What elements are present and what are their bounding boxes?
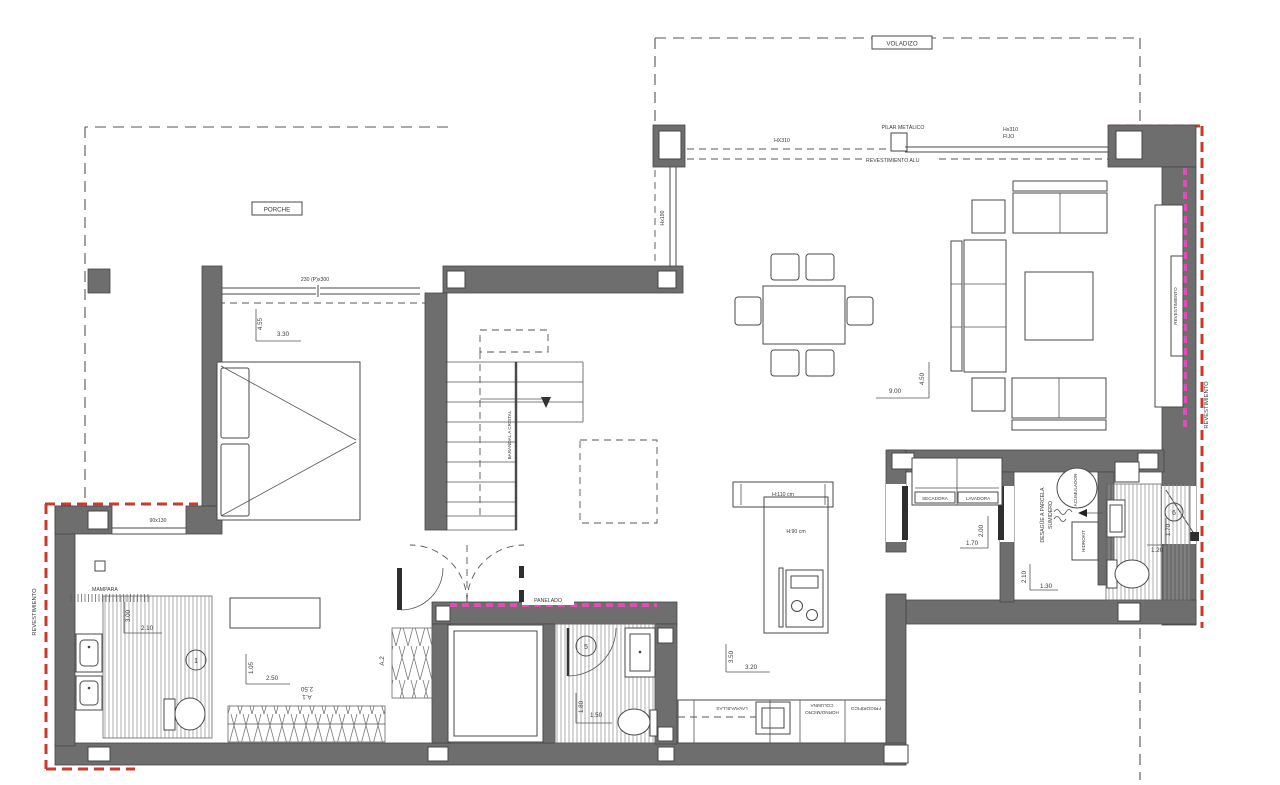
porch-post <box>88 269 110 293</box>
window-fixed-top <box>905 147 1108 152</box>
dim-door-a1: A.1 <box>302 693 312 700</box>
window-left-living <box>670 167 676 266</box>
room-number-bath1: 1 <box>194 658 198 665</box>
cooktop <box>786 570 823 627</box>
tv-unit <box>1155 205 1183 407</box>
chair <box>806 350 834 376</box>
label-revestimiento-right-inner: REVESTIMIENTO <box>1173 287 1178 325</box>
label-secadora: SECADORA <box>922 496 949 501</box>
door-bedroom-leaf <box>397 568 402 610</box>
label-revestimiento-alu: REVESTIMIENTO ALU <box>866 158 920 164</box>
label-frigorifico: FRIGORÍFICO <box>851 706 882 712</box>
dim-bath5-d: 1.80 <box>578 700 585 713</box>
label-barandal: BARANDAL A CRISTAL <box>507 410 512 459</box>
side-table <box>972 378 1005 411</box>
label-hx310-fijo-1: Hx310 <box>1003 127 1018 133</box>
label-lavavajillas: LAVAVAJILLAS <box>716 706 747 711</box>
dim-bedroom-h: 3.30 <box>277 331 290 338</box>
dim-tech-w: 1.30 <box>1040 583 1053 590</box>
label-puerta-230: 230 (P)x300 <box>301 277 329 283</box>
dim-living-d: 4.50 <box>919 372 926 385</box>
hall-double-door <box>410 545 524 602</box>
label-90x130: 90x130 <box>149 518 166 524</box>
technical-room: ACUMULADOR HIDROKIT SUMIDERO DESAGÜE A P… <box>1021 468 1103 590</box>
toilet-tank <box>650 710 657 736</box>
master-bathroom: MAMPARA 1 90x130 3.00 2.10 <box>70 518 212 738</box>
chair <box>771 350 799 376</box>
wardrobe <box>392 628 432 698</box>
label-revestimiento-right-outer: REVESTIMIENTO <box>1204 381 1210 429</box>
label-pilar-metalico: PILAR METÁLICO <box>882 124 925 131</box>
window-porch <box>222 285 420 297</box>
label-acumulador: ACUMULADOR <box>1073 473 1078 506</box>
dim-bath6-w: 1.20 <box>1151 547 1164 554</box>
coffee-table <box>1025 272 1093 340</box>
label-hx190: Hx190 <box>660 210 666 225</box>
dim-bath1-w: 2.10 <box>141 625 154 632</box>
dining-table <box>763 286 845 344</box>
floor-plan-page: REVESTIMIENTO REVESTIMIENTO <box>0 0 1280 785</box>
chair <box>771 254 799 280</box>
steel-pillar <box>891 133 907 151</box>
drain-arrow <box>1078 509 1087 517</box>
stair-direction-arrow <box>541 397 551 408</box>
laundry-room: SECADORA LAVADORA 2.00 1.70 <box>912 458 1002 548</box>
kitchen-island <box>764 497 828 633</box>
upper-floor-void-outline <box>580 440 657 523</box>
kitchen-sink <box>756 702 790 734</box>
dim-bath6-d: 1.70 <box>1165 523 1172 536</box>
dim-dressing-w: 2.50 <box>266 675 279 682</box>
chair <box>806 254 834 280</box>
label-panelado: PANELADO <box>534 598 562 604</box>
dim-laundry-d: 2.00 <box>978 524 985 537</box>
label-columna: COLUMNA <box>810 703 834 708</box>
top-labels: VOLADIZO PILAR METÁLICO HX310 Hx310 FIJO… <box>252 36 1018 283</box>
bathroom-5: 5 1.80 1.50 <box>555 624 657 743</box>
dim-door-a2: A.2 <box>379 656 386 666</box>
dim-kitchen-d: 3.50 <box>728 650 735 663</box>
dim-tech-d: 2.10 <box>1021 570 1028 583</box>
chair <box>847 297 873 325</box>
label-porche: PORCHE <box>264 207 290 214</box>
kitchen: LAVAVAJILLAS COLUMNA HORNO/MICRO FRIGORÍ… <box>678 482 886 743</box>
toilet <box>618 709 650 735</box>
dim-dressing-d: 1.05 <box>248 661 255 674</box>
label-revestimiento-left: REVESTIMIENTO <box>32 588 38 636</box>
dim-laundry-w: 1.70 <box>966 540 979 547</box>
dim-living-w: 9.00 <box>889 388 902 395</box>
toilet-tank <box>164 699 175 730</box>
chair <box>735 297 761 325</box>
living-area: REVESTIMIENTO 9.00 4.50 <box>876 181 1183 430</box>
label-h110: H:110 cm <box>772 492 794 498</box>
label-horno-micro: HORNO/MICRO <box>805 710 839 715</box>
label-h90: H:90 cm <box>786 529 805 535</box>
label-voladizo: VOLADIZO <box>886 41 917 48</box>
side-table <box>972 200 1005 233</box>
toilet <box>175 698 205 730</box>
dim-door-a1-w: 2.50 <box>300 685 313 692</box>
label-lavadora: LAVADORA <box>966 496 991 501</box>
window-bath1 <box>112 528 186 534</box>
dim-bedroom-v: 4.55 <box>257 317 264 330</box>
label-hx310: HX310 <box>774 138 790 144</box>
mampara-screen <box>70 594 150 602</box>
dim-bath1-d: 3.00 <box>125 609 132 622</box>
room-number-bath6: 6 <box>1172 510 1176 517</box>
dresser <box>230 598 320 628</box>
toilet <box>1115 560 1149 588</box>
room-number-bath5: 5 <box>584 644 588 651</box>
shower-drain <box>95 561 105 571</box>
floor-plan-drawing: REVESTIMIENTO REVESTIMIENTO <box>0 0 1280 785</box>
label-sumidero: SUMIDERO <box>1048 501 1054 529</box>
pillow <box>221 368 249 438</box>
elevator-shaft <box>448 625 543 742</box>
label-desague: DESAGÜE A PARCELA <box>1039 487 1046 543</box>
label-hidrokit: HIDROKIT <box>1081 530 1086 552</box>
dim-kitchen-w: 3.20 <box>745 664 758 671</box>
sofa <box>964 240 1006 372</box>
label-mampara: MAMPARA <box>92 587 118 593</box>
dining-area <box>735 254 873 376</box>
pillow <box>221 444 249 516</box>
bathroom-6: 6 1.70 1.20 <box>1106 484 1190 600</box>
label-hx310-fijo-2: FIJO <box>1003 134 1014 140</box>
dim-bath5-w: 1.50 <box>590 712 603 719</box>
staircase: BARANDAL A CRISTAL <box>445 330 583 530</box>
